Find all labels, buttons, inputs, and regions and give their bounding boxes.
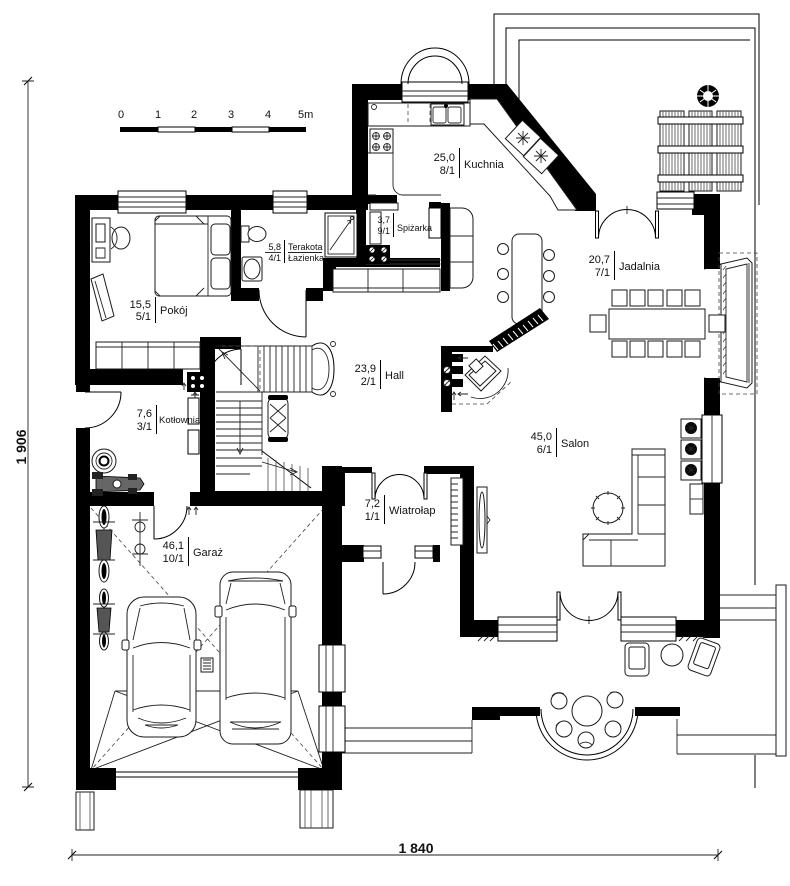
svg-text:7/1: 7/1	[595, 267, 610, 279]
svg-text:5/1: 5/1	[136, 311, 151, 323]
svg-text:2: 2	[191, 109, 197, 121]
svg-text:45,0: 45,0	[531, 431, 552, 443]
svg-text:3,7: 3,7	[377, 215, 390, 225]
svg-text:Wiatrołap: Wiatrołap	[389, 505, 435, 517]
svg-text:0: 0	[118, 109, 124, 121]
svg-text:Kuchnia: Kuchnia	[464, 159, 505, 171]
svg-text:Pokój: Pokój	[160, 305, 188, 317]
svg-text:5,8: 5,8	[268, 242, 281, 252]
svg-text:4/1: 4/1	[268, 253, 281, 263]
svg-text:Łazienka: Łazienka	[288, 253, 324, 263]
svg-text:1/1: 1/1	[365, 511, 380, 523]
svg-text:Kotłownia: Kotłownia	[159, 415, 201, 426]
svg-text:46,1: 46,1	[163, 540, 184, 552]
svg-text:4: 4	[265, 109, 271, 121]
svg-text:6/1: 6/1	[537, 444, 552, 456]
svg-text:3/1: 3/1	[137, 421, 152, 433]
svg-text:Hall: Hall	[385, 370, 404, 382]
svg-text:8/1: 8/1	[440, 165, 455, 177]
svg-text:10/1: 10/1	[163, 553, 184, 565]
svg-text:3: 3	[228, 109, 234, 121]
svg-text:Garaż: Garaż	[193, 547, 223, 559]
svg-text:1: 1	[155, 109, 161, 121]
svg-text:1 840: 1 840	[398, 840, 433, 856]
svg-text:Jadalnia: Jadalnia	[619, 261, 661, 273]
svg-text:15,5: 15,5	[130, 299, 151, 311]
svg-text:20,7: 20,7	[589, 254, 610, 266]
svg-text:7,2: 7,2	[365, 498, 380, 510]
svg-text:2/1: 2/1	[361, 376, 376, 388]
svg-text:7,6: 7,6	[137, 408, 152, 420]
svg-text:Terakota: Terakota	[288, 242, 323, 252]
svg-text:23,9: 23,9	[355, 363, 376, 375]
svg-text:5m: 5m	[298, 109, 313, 121]
svg-text:Salon: Salon	[561, 438, 589, 450]
svg-text:Spiżarka: Spiżarka	[397, 223, 432, 233]
svg-text:9/1: 9/1	[377, 226, 390, 236]
svg-text:25,0: 25,0	[434, 152, 455, 164]
svg-text:1 906: 1 906	[13, 429, 29, 464]
